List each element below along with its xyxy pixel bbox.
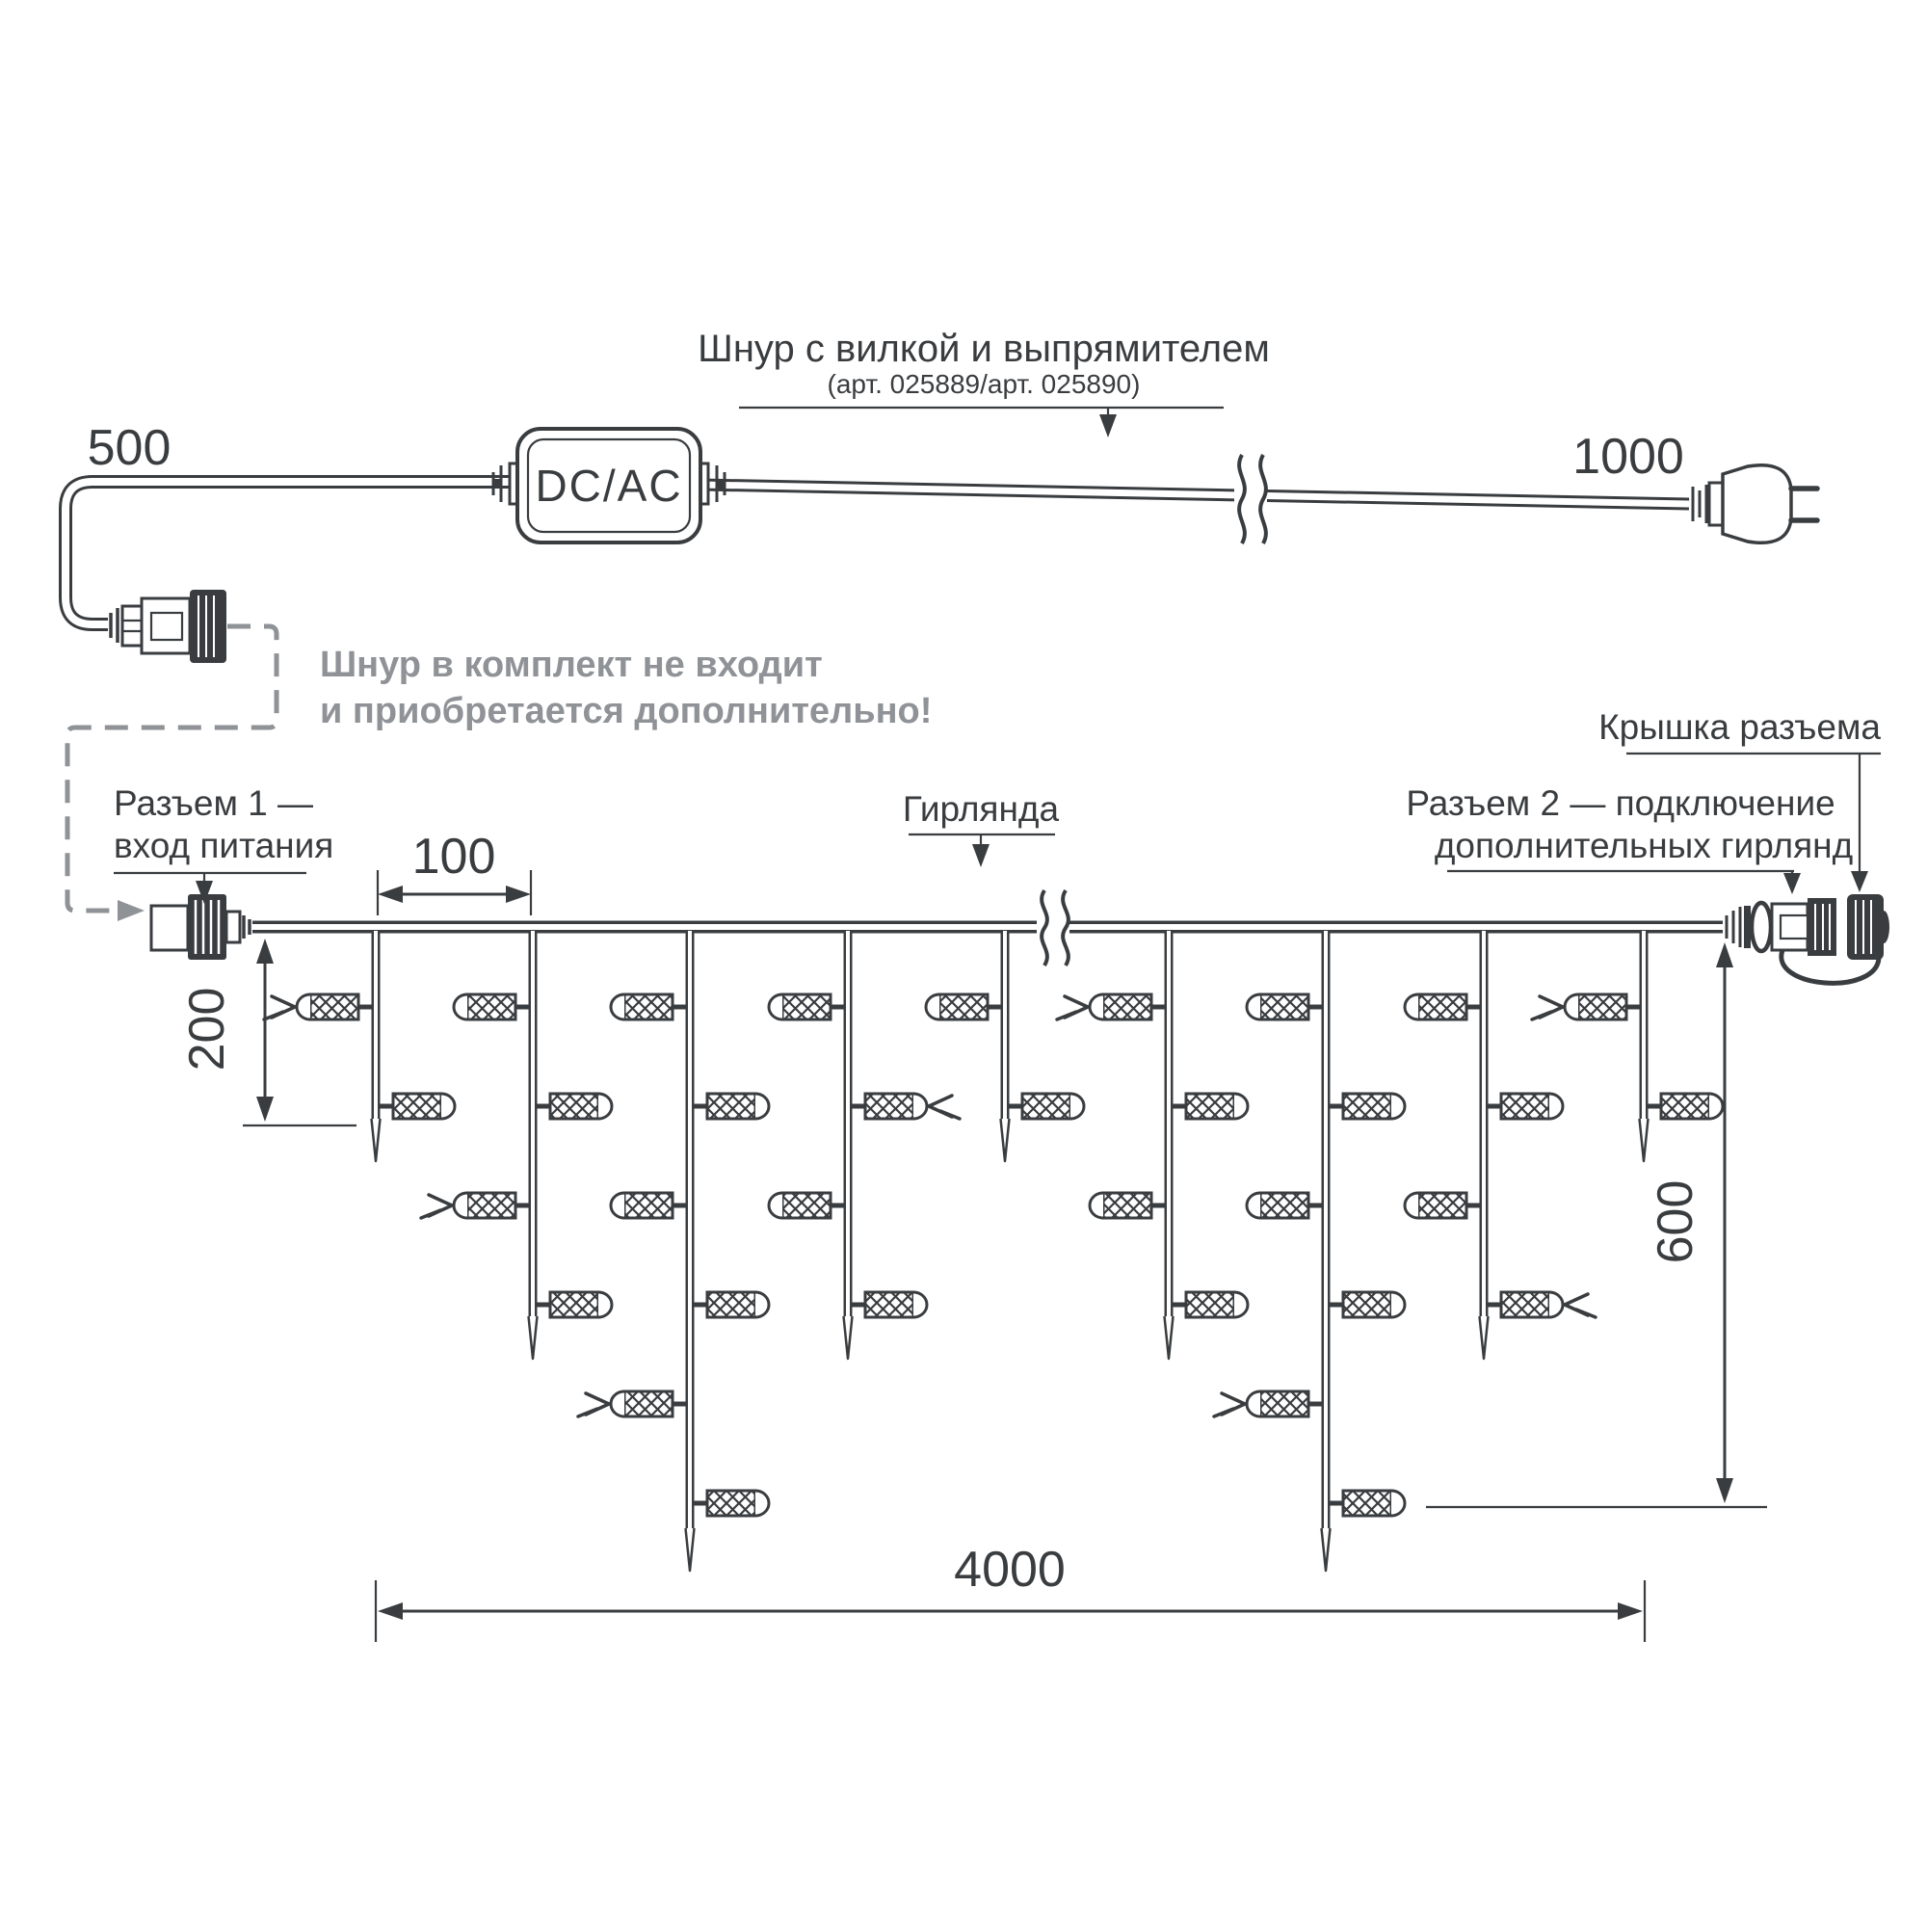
garland-label: Гирлянда <box>903 789 1060 829</box>
bulb-cap <box>1391 1491 1405 1516</box>
bulb-cap <box>755 1491 769 1516</box>
cord-break-icon <box>1234 451 1267 547</box>
light-direction-arrow-icon <box>929 1096 960 1119</box>
bulb-cap <box>1549 1292 1563 1317</box>
drop-tip <box>844 1316 853 1359</box>
drop-tip <box>529 1316 538 1359</box>
dim-600: 600 <box>1426 942 1767 1507</box>
bulb-cap <box>1234 1292 1248 1317</box>
connector2-label-line2: дополнительных гирлянд <box>1435 826 1853 865</box>
connector-2-callout: Разъем 2 — подключение дополнительных ги… <box>1406 783 1853 894</box>
bulb-cap <box>913 1292 927 1317</box>
cord-left <box>66 482 517 624</box>
wire-break-icon <box>1037 888 1069 967</box>
dim-4000-label: 4000 <box>954 1542 1066 1598</box>
garland-wiring-diagram: DC/AC 500 1000 <box>0 0 1927 1927</box>
garland-callout: Гирлянда <box>903 789 1060 867</box>
bulb-cap <box>1565 994 1578 1019</box>
bulb-cap <box>1391 1292 1405 1317</box>
bulb-cap <box>1090 994 1103 1019</box>
dim-600-label: 600 <box>1648 1180 1703 1264</box>
note-line-1: Шнур в комплект не входит <box>320 645 823 685</box>
bulb-cap <box>1090 1193 1103 1218</box>
connector-2 <box>1727 894 1889 983</box>
light-direction-arrow-icon <box>1057 996 1088 1019</box>
bulb-cap <box>611 1391 624 1416</box>
cord-grommet-left <box>493 465 501 502</box>
bulb-cap <box>1549 1094 1563 1119</box>
title-arrow <box>1099 414 1117 437</box>
dim-4000: 4000 <box>376 1542 1645 1642</box>
drop-tip <box>686 1528 695 1571</box>
drop-tip <box>372 1119 381 1161</box>
bulb-cap <box>755 1292 769 1317</box>
connector-1 <box>151 894 250 960</box>
connector-1-callout: Разъем 1 — вход питания <box>114 783 333 904</box>
connector1-label-line1: Разъем 1 — <box>114 783 313 823</box>
hanging-loop <box>1752 903 1771 951</box>
cord-grommet-right <box>717 465 725 502</box>
diagram-subtitle: (арт. 025889/арт. 025890) <box>828 369 1141 399</box>
cord-title-callout: Шнур с вилкой и выпрямителем (арт. 02588… <box>698 328 1270 437</box>
power-plug-icon <box>1693 465 1817 543</box>
light-direction-arrow-icon <box>421 1195 452 1218</box>
bulb-cap <box>755 1094 769 1119</box>
dim-1000-label: 1000 <box>1572 429 1684 485</box>
cap-label: Крышка разъема <box>1598 707 1881 747</box>
bulb-cap <box>441 1094 455 1119</box>
drop-tip <box>1165 1316 1174 1359</box>
bulb-cap <box>1234 1094 1248 1119</box>
power-cord-assembly: DC/AC 500 1000 <box>66 328 1817 663</box>
bulb-cap <box>598 1094 612 1119</box>
light-direction-arrow-icon <box>1565 1294 1596 1317</box>
bulb-cap <box>297 994 310 1019</box>
dim-100: 100 <box>378 829 531 915</box>
dim-100-label: 100 <box>412 829 496 885</box>
bulb-cap <box>454 1193 467 1218</box>
dashed-arrow <box>118 900 145 921</box>
drop-tip <box>1640 1119 1649 1161</box>
light-direction-arrow-icon <box>264 996 295 1019</box>
diagram-title: Шнур с вилкой и выпрямителем <box>698 328 1270 370</box>
bulb-cap <box>611 1193 624 1218</box>
diagram-canvas: DC/AC 500 1000 <box>0 0 1927 1927</box>
dim-200-label: 200 <box>179 988 235 1072</box>
connector-cap <box>1847 894 1889 960</box>
bulb-cap <box>1391 1094 1405 1119</box>
bulb-cap <box>1247 1193 1260 1218</box>
bulb-cap <box>1709 1094 1723 1119</box>
bulb-cap <box>1405 1193 1418 1218</box>
garland-assembly: Разъем 1 — вход питания Гирлянда <box>114 707 1889 1642</box>
bulb-cap <box>769 994 782 1019</box>
bulb-cap <box>454 994 467 1019</box>
connector1-label-line2: вход питания <box>114 826 333 865</box>
drop-tip <box>1001 1119 1010 1161</box>
note-dashed-path: Шнур в комплект не входит и приобретаетс… <box>67 626 932 921</box>
light-direction-arrow-icon <box>1532 996 1563 1019</box>
icicle-drops <box>264 931 1723 1571</box>
bulb-cap <box>1070 1094 1084 1119</box>
connector2-label-line1: Разъем 2 — подключение <box>1406 783 1835 823</box>
dc-ac-converter: DC/AC <box>493 429 725 543</box>
note-line-2: и приобретается дополнительно! <box>320 691 932 731</box>
light-direction-arrow-icon <box>578 1393 609 1416</box>
bulb-cap <box>769 1193 782 1218</box>
bulb-cap <box>598 1292 612 1317</box>
bulb-cap <box>926 994 939 1019</box>
bulb-cap <box>611 994 624 1019</box>
cord-connector-cap <box>190 590 226 663</box>
bulb-cap <box>1247 1391 1260 1416</box>
converter-label: DC/AC <box>535 461 682 511</box>
drop-tip <box>1480 1316 1489 1359</box>
light-direction-arrow-icon <box>1214 1393 1245 1416</box>
bulb-cap <box>1247 994 1260 1019</box>
cord-connector <box>111 590 226 663</box>
bulb-cap <box>913 1094 927 1119</box>
drop-tip <box>1322 1528 1331 1571</box>
bulb-cap <box>1405 994 1418 1019</box>
dim-500-label: 500 <box>88 420 172 476</box>
dim-200: 200 <box>179 939 356 1125</box>
